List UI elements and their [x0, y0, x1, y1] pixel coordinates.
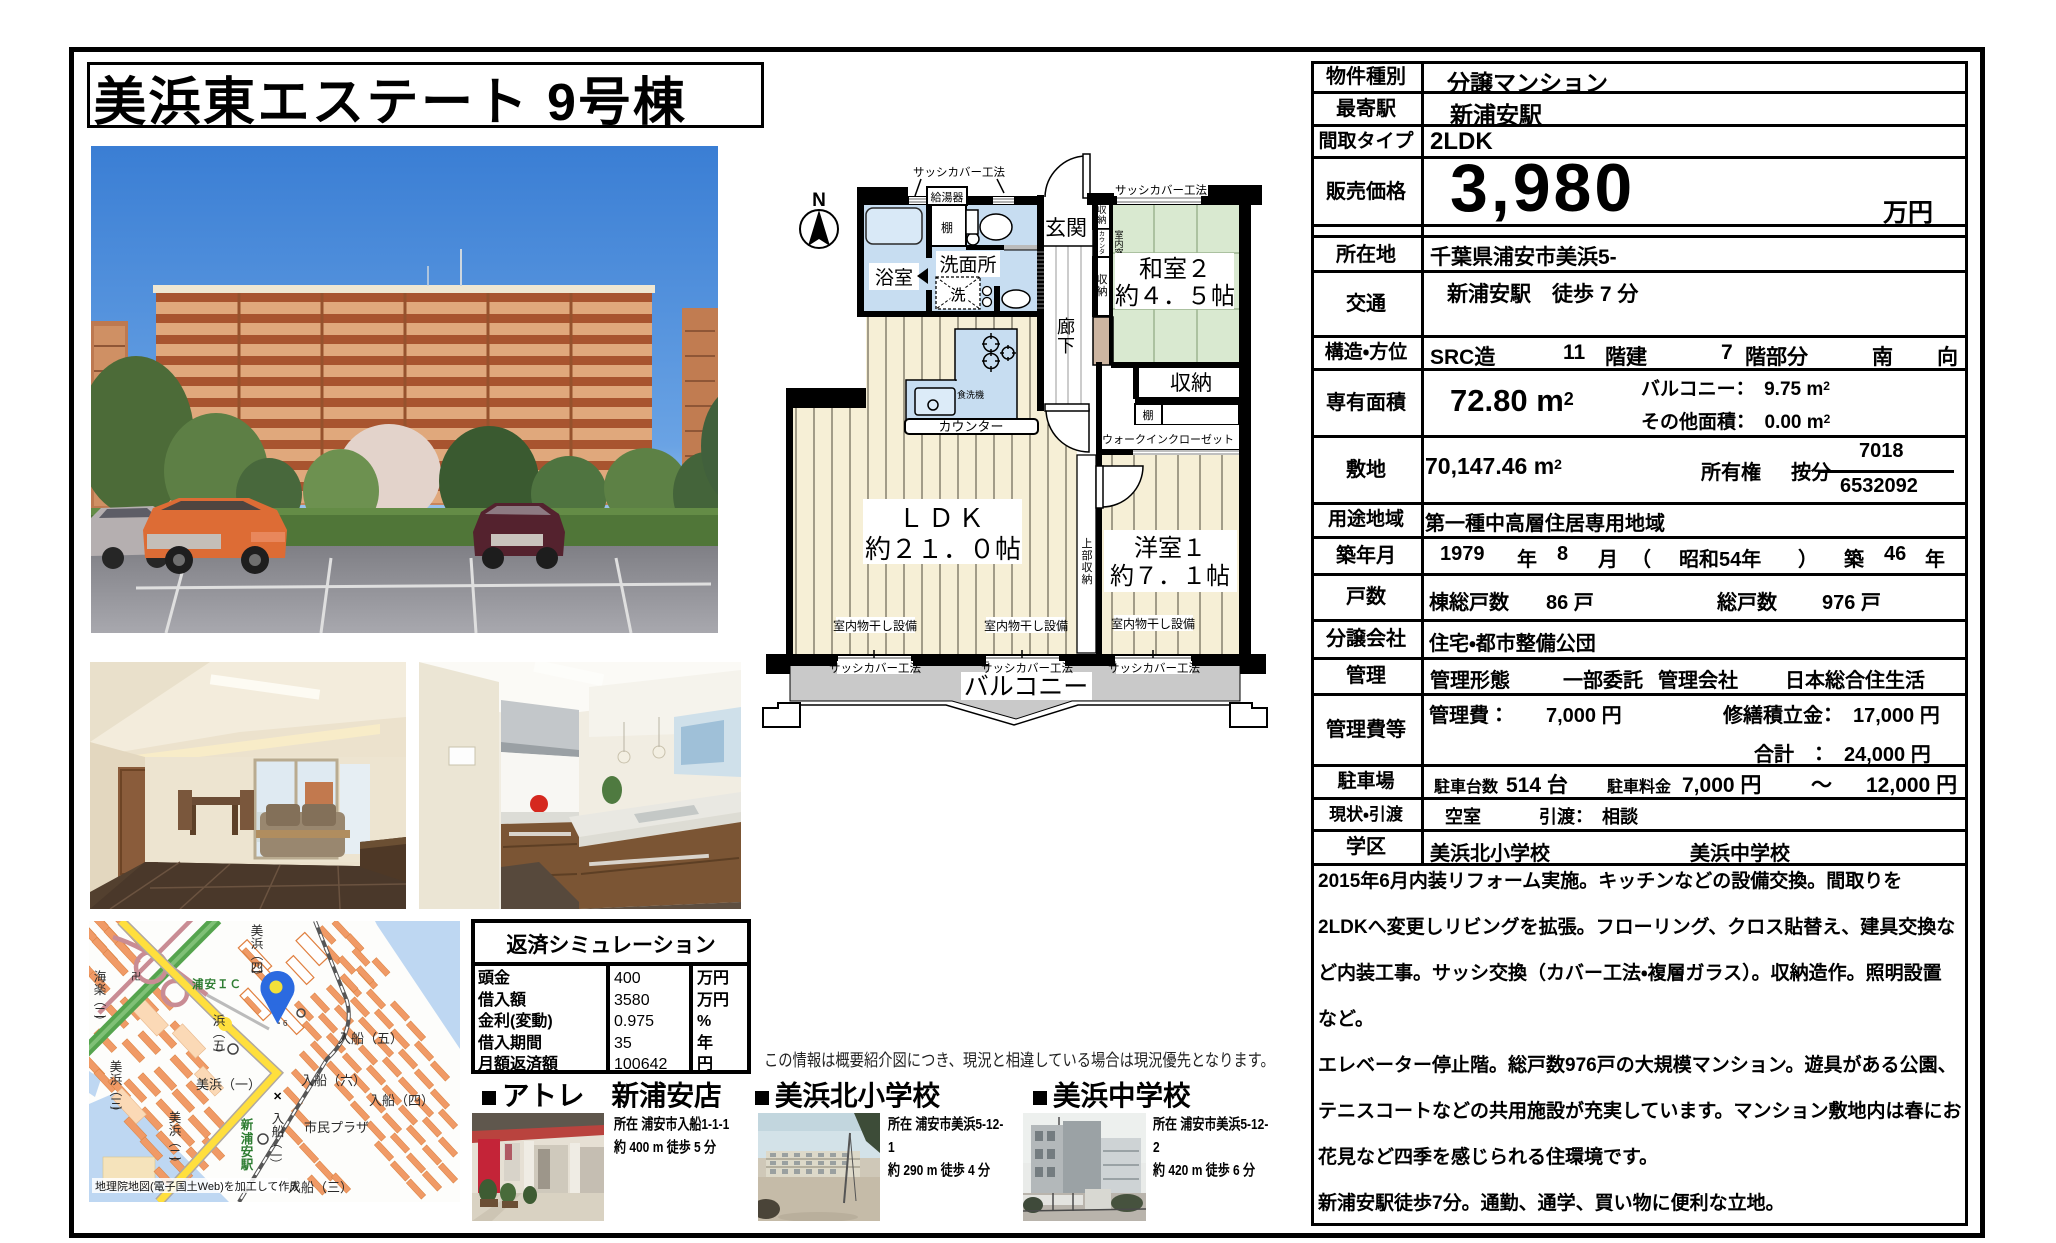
svg-text:洗面所: 洗面所: [939, 254, 996, 276]
svg-text:バルコニー: バルコニー: [964, 673, 1089, 701]
svg-text:収: 収: [1097, 205, 1106, 215]
svg-text:ウォークインクローゼット: ウォークインクローゼット: [1102, 433, 1234, 446]
svg-text:納: 納: [1082, 572, 1093, 586]
svg-text:約４．５帖: 約４．５帖: [1115, 283, 1235, 310]
svg-text:サッシカバー工法: サッシカバー工法: [829, 662, 921, 675]
svg-text:下: 下: [1057, 336, 1075, 356]
svg-text:入船（四）: 入船（四）: [369, 1093, 434, 1108]
svg-text:約７．１帖: 約７．１帖: [1110, 563, 1230, 590]
svg-text:棚: 棚: [1143, 408, 1154, 422]
svg-text:︵: ︵: [169, 1135, 182, 1149]
svg-text:タ: タ: [1099, 248, 1105, 256]
svg-text:︶: ︶: [110, 1106, 123, 1120]
svg-text:棚: 棚: [941, 220, 953, 235]
svg-text:ウ: ウ: [1099, 236, 1105, 244]
svg-text:地理院地図(電子国土Web)を加工して作成: 地理院地図(電子国土Web)を加工して作成: [95, 1180, 300, 1193]
svg-text:収: 収: [1082, 561, 1093, 574]
svg-text:駅: 駅: [240, 1157, 254, 1172]
svg-text:収納: 収納: [1170, 372, 1212, 395]
svg-text:納: 納: [1097, 214, 1106, 225]
svg-text:収: 収: [1097, 273, 1108, 286]
svg-text:サッシカバー工法: サッシカバー工法: [1115, 184, 1207, 197]
svg-text:✕: ✕: [273, 1091, 282, 1103]
svg-text:廊: 廊: [1057, 317, 1075, 337]
svg-text:浴室: 浴室: [875, 267, 913, 289]
svg-text:給湯器: 給湯器: [931, 191, 964, 204]
svg-text:安: 安: [241, 1144, 254, 1159]
svg-text:入船（五）: 入船（五）: [338, 1031, 403, 1046]
svg-text:約２１．０帖: 約２１．０帖: [865, 534, 1021, 564]
svg-text:美: 美: [169, 1111, 182, 1125]
svg-text:美: 美: [251, 924, 264, 938]
svg-text:︶: ︶: [169, 1157, 182, 1171]
svg-text:納: 納: [1097, 284, 1108, 298]
svg-text:卍: 卍: [131, 971, 141, 983]
svg-text:入: 入: [272, 1112, 285, 1126]
svg-text:食洗機: 食洗機: [957, 389, 984, 400]
svg-text:洗: 洗: [950, 287, 965, 304]
svg-text:室内物干し設備: 室内物干し設備: [984, 619, 1068, 633]
svg-text:カウンター: カウンター: [938, 419, 1003, 434]
svg-text:海: 海: [94, 970, 107, 984]
svg-text:室内物干し設備: 室内物干し設備: [1111, 617, 1195, 631]
svg-text:N: N: [812, 190, 826, 211]
svg-text:︶: ︶: [213, 1048, 226, 1062]
svg-text:サッシカバー工法: サッシカバー工法: [913, 166, 1005, 179]
svg-text:市民プラザ: 市民プラザ: [304, 1120, 369, 1135]
svg-text:玄関: 玄関: [1045, 217, 1087, 240]
svg-text:︵: ︵: [110, 1084, 123, 1098]
svg-text:サッシカバー工法: サッシカバー工法: [1108, 662, 1200, 675]
svg-text:ＬＤＫ: ＬＤＫ: [898, 503, 988, 533]
svg-text:美: 美: [110, 1060, 123, 1074]
svg-text:上: 上: [1082, 537, 1093, 550]
svg-text:和室２: 和室２: [1139, 256, 1211, 283]
svg-text:入船（六）: 入船（六）: [301, 1073, 366, 1088]
svg-text:美浜（一）: 美浜（一）: [196, 1077, 261, 1092]
svg-text:洋室１: 洋室１: [1134, 535, 1206, 562]
svg-text:︵: ︵: [251, 948, 264, 962]
svg-text:新: 新: [240, 1117, 254, 1132]
svg-text:サッシカバー工法: サッシカバー工法: [981, 662, 1073, 675]
svg-text:浦安ＩＣ: 浦安ＩＣ: [192, 977, 242, 991]
svg-text:︶: ︶: [94, 1015, 107, 1029]
svg-text:カ: カ: [1099, 231, 1105, 238]
svg-text:部: 部: [1082, 549, 1093, 562]
svg-text:︵: ︵: [270, 1136, 283, 1150]
svg-text:浦: 浦: [241, 1131, 254, 1146]
svg-text:︶: ︶: [270, 1158, 283, 1172]
svg-text:室内物干し設備: 室内物干し設備: [833, 619, 917, 633]
svg-text:︵: ︵: [213, 1026, 226, 1040]
